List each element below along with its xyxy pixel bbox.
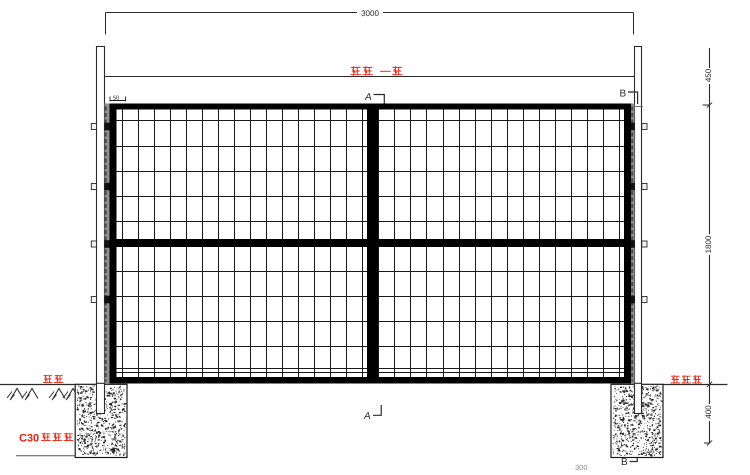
svg-text:A: A [364, 92, 372, 103]
svg-text:A: A [363, 411, 371, 422]
svg-text:300: 300 [575, 463, 588, 470]
svg-text:50: 50 [113, 96, 119, 102]
svg-text:1800: 1800 [704, 235, 713, 253]
svg-text:B: B [621, 457, 628, 468]
svg-text:400: 400 [704, 405, 713, 419]
svg-text:450: 450 [704, 68, 713, 82]
svg-text:C30: C30 [19, 433, 39, 445]
svg-text:3000: 3000 [361, 9, 379, 18]
svg-text:B: B [620, 89, 627, 100]
